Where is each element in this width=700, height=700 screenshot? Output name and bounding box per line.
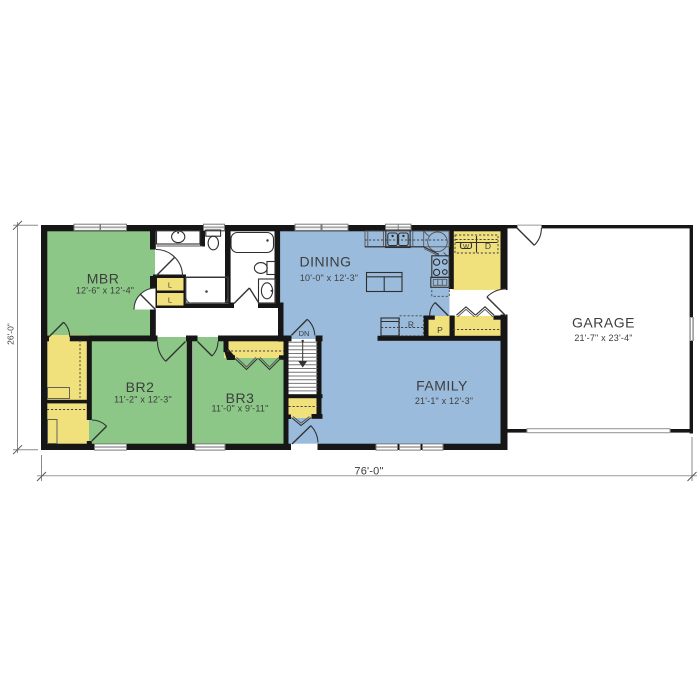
svg-text:DINING: DINING bbox=[300, 254, 352, 270]
svg-text:26'-0": 26'-0" bbox=[6, 323, 16, 345]
svg-text:DN: DN bbox=[299, 329, 310, 338]
svg-text:11'-2" x 12'-3": 11'-2" x 12'-3" bbox=[114, 395, 172, 405]
svg-text:12'-6" x 12'-4": 12'-6" x 12'-4" bbox=[76, 286, 134, 296]
svg-text:76'-0": 76'-0" bbox=[354, 465, 383, 477]
svg-text:L: L bbox=[168, 280, 172, 289]
svg-text:D: D bbox=[485, 241, 491, 251]
svg-text:P: P bbox=[437, 325, 443, 335]
svg-text:10'-0" x 12'-3": 10'-0" x 12'-3" bbox=[300, 273, 358, 283]
svg-text:21'-7" x 23'-4": 21'-7" x 23'-4" bbox=[574, 333, 632, 343]
svg-text:W: W bbox=[463, 244, 470, 251]
svg-text:GARAGE: GARAGE bbox=[572, 315, 635, 331]
svg-text:21'-1" x 12'-3": 21'-1" x 12'-3" bbox=[415, 396, 473, 406]
svg-text:BR2: BR2 bbox=[126, 379, 155, 395]
svg-text:11'-0" x 9'-11": 11'-0" x 9'-11" bbox=[211, 404, 268, 414]
svg-text:FAMILY: FAMILY bbox=[416, 377, 468, 393]
svg-text:R: R bbox=[408, 319, 414, 329]
svg-text:MBR: MBR bbox=[87, 271, 120, 287]
svg-text:L: L bbox=[168, 295, 172, 304]
